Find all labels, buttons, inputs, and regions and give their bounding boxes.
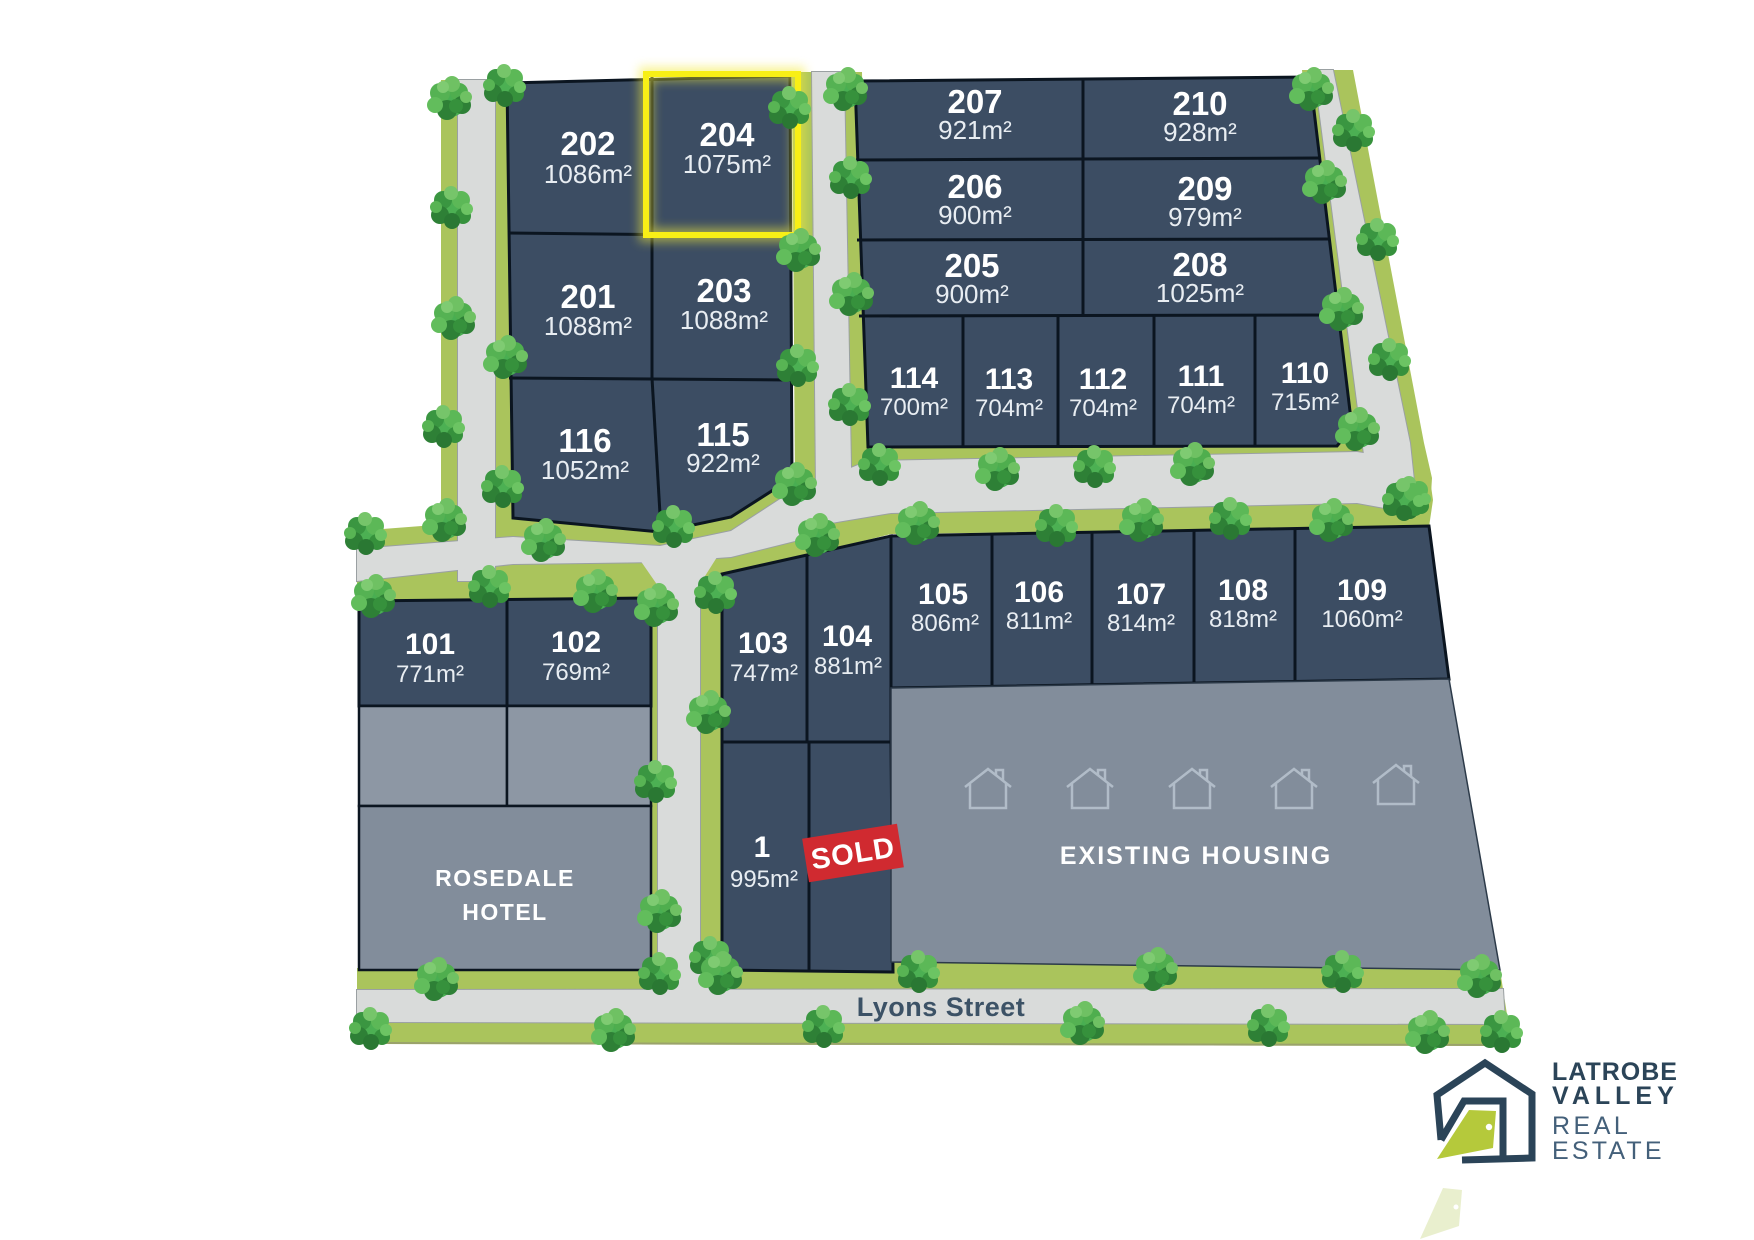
svg-text:818m²: 818m² [1209,606,1277,633]
svg-text:814m²: 814m² [1107,610,1175,637]
svg-text:1052m²: 1052m² [541,455,629,485]
svg-text:995m²: 995m² [730,866,798,893]
svg-text:ESTATE: ESTATE [1552,1137,1665,1165]
svg-text:EXISTING HOUSING: EXISTING HOUSING [1060,842,1332,870]
svg-text:ROSEDALE: ROSEDALE [435,865,575,891]
svg-text:109: 109 [1337,574,1387,607]
svg-text:747m²: 747m² [730,660,798,687]
svg-text:700m²: 700m² [880,394,948,421]
svg-text:112: 112 [1079,363,1127,396]
svg-text:108: 108 [1218,574,1268,607]
svg-text:104: 104 [822,620,872,653]
svg-text:113: 113 [985,363,1033,396]
svg-text:201: 201 [560,278,615,315]
svg-text:110: 110 [1281,357,1329,390]
svg-text:771m²: 771m² [396,661,464,688]
svg-text:704m²: 704m² [975,395,1043,422]
svg-text:900m²: 900m² [938,200,1012,230]
svg-text:116: 116 [558,422,611,459]
svg-text:102: 102 [551,626,601,659]
svg-text:900m²: 900m² [935,279,1009,309]
svg-text:1025m²: 1025m² [1156,278,1244,308]
svg-text:1: 1 [754,831,771,864]
svg-text:204: 204 [699,116,755,153]
svg-text:715m²: 715m² [1271,389,1339,416]
svg-text:101: 101 [405,628,455,661]
svg-text:1075m²: 1075m² [683,149,771,179]
svg-text:106: 106 [1014,576,1064,609]
svg-text:928m²: 928m² [1163,117,1237,147]
svg-text:105: 105 [918,578,968,611]
svg-text:REAL: REAL [1552,1112,1631,1140]
svg-text:111: 111 [1178,360,1225,393]
svg-text:114: 114 [890,362,939,395]
svg-text:107: 107 [1116,578,1166,611]
svg-text:1086m²: 1086m² [544,159,632,189]
svg-text:103: 103 [738,627,788,660]
svg-text:806m²: 806m² [911,610,979,637]
svg-text:921m²: 921m² [938,115,1012,145]
svg-text:202: 202 [560,125,615,162]
svg-text:1088m²: 1088m² [544,311,632,341]
svg-text:1088m²: 1088m² [680,305,768,335]
svg-text:811m²: 811m² [1006,608,1072,635]
svg-text:1060m²: 1060m² [1321,606,1402,633]
svg-text:HOTEL: HOTEL [462,899,547,925]
svg-text:769m²: 769m² [542,659,610,686]
svg-text:922m²: 922m² [686,448,760,478]
svg-text:VALLEY: VALLEY [1552,1082,1679,1110]
svg-text:704m²: 704m² [1167,392,1235,419]
svg-text:704m²: 704m² [1069,395,1137,422]
svg-text:Lyons Street: Lyons Street [857,992,1026,1022]
svg-text:979m²: 979m² [1168,202,1242,232]
svg-text:203: 203 [696,272,751,309]
svg-text:881m²: 881m² [814,653,882,680]
